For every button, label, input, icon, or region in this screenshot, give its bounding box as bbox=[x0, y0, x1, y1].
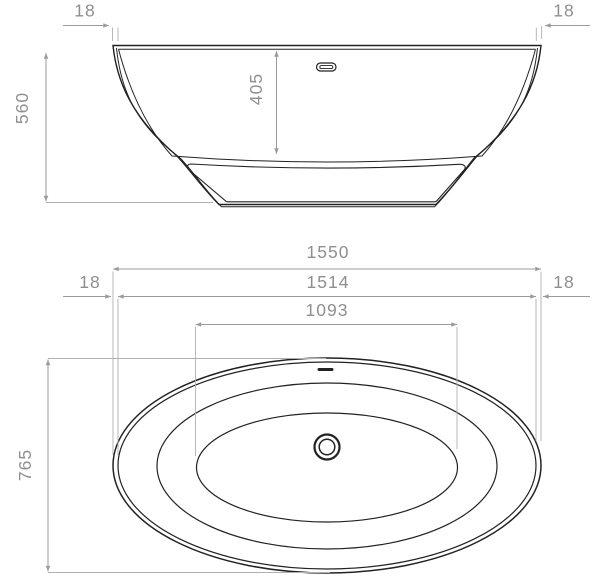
bathtub-technical-drawing: 18 18 560 405 bbox=[0, 0, 600, 581]
dim-label-overall-length: 1550 bbox=[307, 242, 350, 262]
dim-label-height: 560 bbox=[12, 92, 32, 124]
dim-label-rim-right: 18 bbox=[553, 1, 574, 21]
dim-label-internal-length: 1514 bbox=[307, 272, 350, 292]
dim-label-depth: 405 bbox=[246, 73, 266, 105]
dimension-overall-height: 560 bbox=[12, 53, 213, 203]
overflow-slot-inner bbox=[320, 66, 333, 69]
dim-label-plan-rim-right: 18 bbox=[553, 272, 574, 292]
dimension-internal-depth: 405 bbox=[246, 51, 277, 154]
drawing-sheet: 18 18 560 405 bbox=[0, 0, 600, 581]
dimension-rim-thickness-left: 18 bbox=[63, 1, 118, 42]
dimension-rim-thickness-right: 18 bbox=[536, 1, 590, 42]
dimension-plan-rim-left: 18 bbox=[63, 272, 111, 297]
base-skirt-panel bbox=[187, 164, 465, 202]
drain-outer-ring bbox=[315, 435, 340, 460]
dim-label-basin-length: 1093 bbox=[306, 300, 349, 320]
dim-label-overall-width: 765 bbox=[15, 449, 35, 481]
dim-label-rim-left: 18 bbox=[74, 1, 95, 21]
rim-inner-ellipse bbox=[118, 362, 536, 569]
drain-inner-ring bbox=[319, 439, 335, 455]
bath-outer-shell bbox=[113, 46, 541, 205]
dimension-basin-length: 1093 bbox=[196, 300, 458, 456]
dim-label-plan-rim-left: 18 bbox=[79, 272, 100, 292]
overflow-mark bbox=[318, 368, 334, 371]
basin-floor-ellipse bbox=[197, 413, 458, 522]
rim-outer-ellipse bbox=[113, 358, 541, 573]
side-elevation-view: 18 18 560 405 bbox=[12, 1, 590, 207]
bath-shell-inner-edge bbox=[117, 48, 538, 207]
basin-top-ellipse bbox=[157, 383, 497, 549]
basin-interior-line bbox=[119, 49, 536, 162]
plan-view: 1550 1514 18 18 1093 bbox=[15, 242, 590, 573]
dimension-plan-rim-right: 18 bbox=[543, 272, 590, 297]
